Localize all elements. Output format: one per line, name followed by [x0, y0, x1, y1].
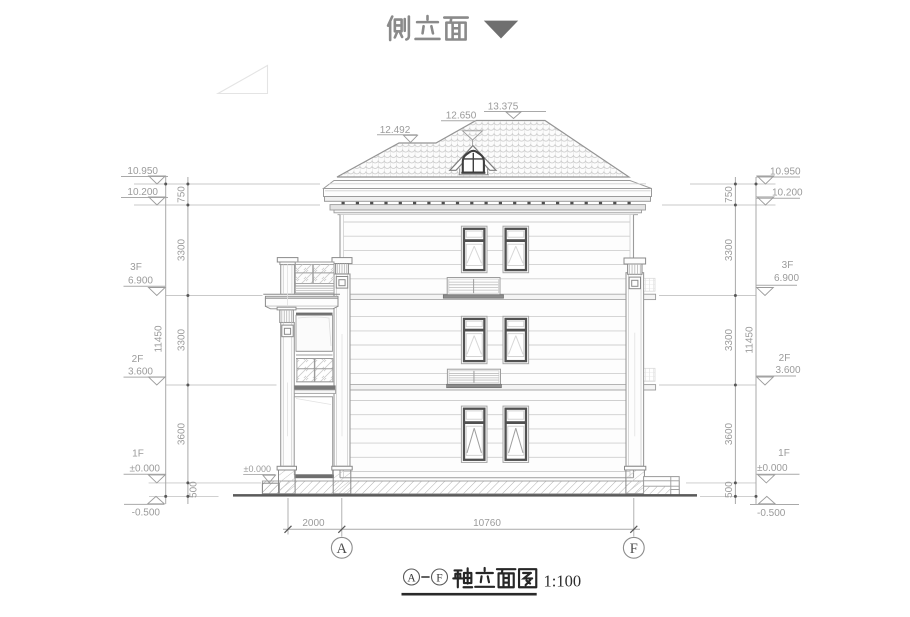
svg-text:A: A [337, 541, 348, 557]
svg-text:±0.000: ±0.000 [244, 464, 271, 474]
svg-text:3300: 3300 [177, 238, 188, 261]
svg-text:F: F [630, 541, 638, 557]
svg-text:F: F [436, 572, 442, 584]
svg-text:3.600: 3.600 [776, 365, 801, 376]
svg-text:10.950: 10.950 [127, 166, 158, 177]
svg-text:A: A [407, 572, 416, 584]
svg-text:2000: 2000 [302, 518, 325, 529]
svg-text:-0.500: -0.500 [132, 508, 161, 519]
svg-text:3600: 3600 [724, 422, 735, 445]
svg-text:6.900: 6.900 [128, 275, 153, 286]
svg-text:1F: 1F [778, 448, 790, 459]
svg-text:1F: 1F [132, 449, 144, 460]
svg-text:3F: 3F [782, 260, 794, 271]
svg-text:500: 500 [189, 481, 200, 498]
svg-text:12.650: 12.650 [446, 111, 477, 122]
svg-text:2F: 2F [132, 354, 144, 365]
svg-text:3300: 3300 [177, 328, 188, 351]
svg-text:3300: 3300 [724, 328, 735, 351]
svg-text:11450: 11450 [154, 325, 165, 353]
svg-text:11450: 11450 [745, 326, 756, 354]
svg-text:-0.500: -0.500 [757, 508, 786, 519]
svg-text:±0.000: ±0.000 [129, 464, 160, 475]
svg-text:3300: 3300 [724, 238, 735, 261]
svg-text:1:100: 1:100 [544, 572, 582, 591]
svg-text:10760: 10760 [473, 518, 501, 529]
svg-text:3600: 3600 [177, 422, 188, 445]
svg-text:750: 750 [724, 186, 735, 203]
svg-text:3F: 3F [130, 262, 142, 273]
svg-text:±0.000: ±0.000 [757, 463, 788, 474]
svg-text:6.900: 6.900 [774, 273, 799, 284]
svg-text:10.200: 10.200 [772, 187, 803, 198]
svg-text:750: 750 [177, 186, 188, 203]
svg-text:10.200: 10.200 [127, 187, 158, 198]
svg-text:3.600: 3.600 [128, 366, 153, 377]
svg-text:2F: 2F [779, 353, 791, 364]
svg-text:500: 500 [724, 481, 735, 498]
